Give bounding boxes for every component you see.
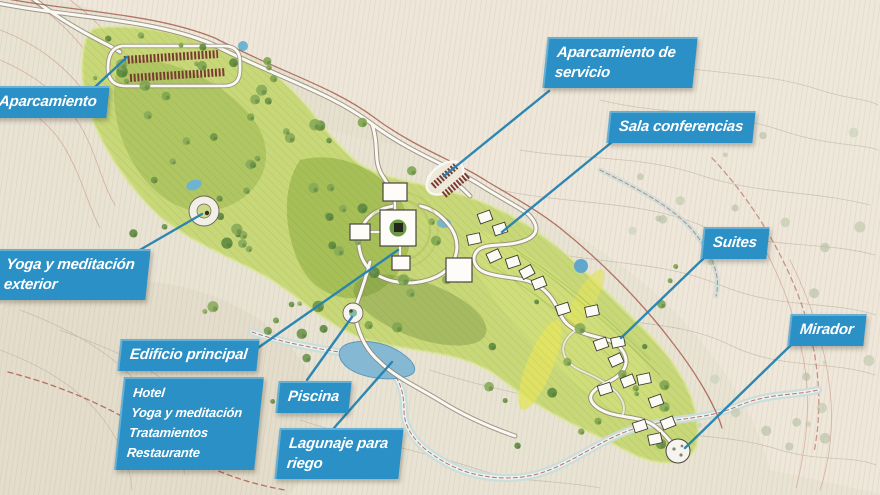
tree [802,373,810,381]
annex-building [383,183,407,201]
tree [710,374,719,383]
tree [820,433,831,444]
tree [655,215,661,221]
annex-building [350,224,370,240]
suite-cabin [585,305,600,317]
tree [676,196,685,205]
tree [723,152,728,157]
label-suites: Suites [700,227,769,259]
label-aparcamiento-servicio: Aparcamiento de servicio [542,37,697,88]
tree [809,288,819,298]
tree [759,132,766,139]
label-piscina: Piscina [275,381,351,413]
tree [761,426,771,436]
programa-item-yoga: Yoga y meditación [130,403,250,423]
suite-cabin [637,373,652,385]
label-edificio-programa: Hotel Yoga y meditación Tratamientos Res… [114,377,264,470]
label-suites-text: Suites [712,233,758,253]
suite-cabin [611,336,626,348]
tree [697,423,702,428]
label-sala-conferencias: Sala conferencias [606,111,755,143]
label-piscina-text: Piscina [287,387,340,407]
label-mirador-text: Mirador [799,320,855,340]
label-yoga-exterior: Yoga y meditación exterior [0,249,151,300]
tree [849,128,859,138]
label-sala-conferencias-text: Sala conferencias [618,117,744,137]
annex-building [392,256,410,270]
label-edificio-principal-text: Edificio principal [129,345,248,365]
label-yoga-exterior-text: Yoga y meditación exterior [3,255,139,294]
label-edificio-principal: Edificio principal [117,339,260,371]
tree [637,173,644,180]
programa-item-hotel: Hotel [132,383,252,403]
tree [805,421,810,426]
label-aparcamiento-servicio-text: Aparcamiento de servicio [554,43,686,82]
tree [731,204,738,211]
tree [785,442,793,450]
pool-platform [343,303,363,323]
label-aparcamiento: Aparcamiento [0,86,109,118]
programa-item-tratamientos: Tratamientos [128,423,248,443]
yoga-platform [189,196,219,226]
tree [863,355,874,366]
programa-item-restaurante: Restaurante [126,443,246,463]
tree [781,218,790,227]
courtyard-feature [394,223,403,232]
tree [823,360,827,364]
mirador-platform [666,439,690,463]
label-aparcamiento-text: Aparcamiento [0,92,98,112]
suite-cabin [467,233,482,245]
pond [574,259,588,273]
label-lagunaje-text: Lagunaje para riego [286,434,392,473]
tree [731,408,740,417]
label-lagunaje: Lagunaje para riego [274,428,403,479]
label-mirador: Mirador [787,314,866,346]
masterplan-screenshot: Aparcamiento Aparcamiento de servicio Sa… [0,0,880,495]
annex-building [446,258,472,282]
tree [708,259,714,265]
tree [854,221,865,232]
tree [820,243,829,252]
tree [817,403,827,413]
tree [792,418,801,427]
suite-cabin [648,433,663,445]
tree [628,227,636,235]
